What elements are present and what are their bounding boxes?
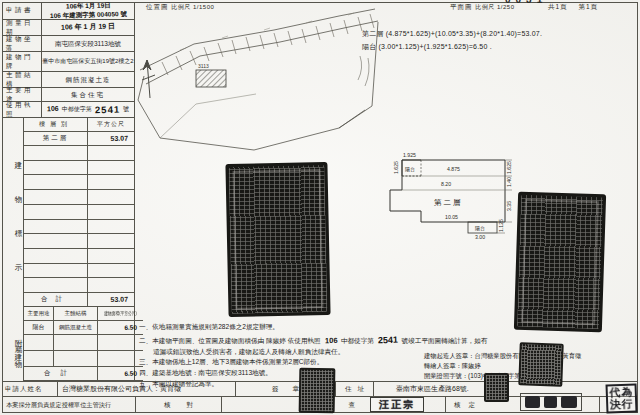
application-doc-number: 106 年建測字第 004050 號 (49, 9, 126, 19)
info-row-address: 建物門牌 臺中市南屯區保安五街19號2樓之2 (2, 52, 134, 72)
examiner-signature-stamp: 汪正宗 (370, 397, 424, 412)
dim-right-balcony: 1.125 (498, 219, 504, 232)
info-row-application: 申請書 106年 1月 19日 106 年建測字第 004050 號 (2, 2, 134, 20)
empty-row (24, 278, 134, 293)
note-line-1: 一、依地籍測量實施規則第282條之2規定辦理。 (139, 322, 487, 333)
applicant-label: 申請人姓名 (2, 382, 58, 396)
delegate-stamp-line2: 決行 (610, 398, 634, 410)
land-lot-label: 建物坐落 (2, 36, 42, 51)
dim-width-bottom: 10.05 (445, 214, 458, 220)
formula-second-floor: 第二層 (4.875*1.625)+(10.05*3.35)+(8.20*1.4… (362, 28, 542, 41)
empty-row (24, 264, 134, 279)
note-line-2a: 二、本建物平面圖、位置圖及建物面積係由 陳婌婷 依使用執照 106 中都使字第 … (139, 333, 487, 347)
dim-balcony-width: 3.00 (475, 234, 485, 240)
door-plate-value: 臺中市南屯區保安五街19號2樓之2 (42, 58, 134, 65)
annex-row-balcony: 陽台 鋼筋混凝土造 6.50 (24, 321, 143, 335)
license-year: 106 (47, 105, 59, 114)
examiner-name: 汪正宗 (379, 398, 415, 412)
formula-balcony: 陽台 (3.00*1.125)+(1.925*1.625)=6.50 . (362, 41, 542, 54)
license-suffix: 號 (123, 106, 129, 113)
use-license-value: 106 中都使字第 2541 號 (42, 104, 134, 115)
dim-top: 1.925 (403, 152, 416, 158)
registration-seal-right (514, 192, 606, 333)
main-use-value: 集合住宅 (42, 91, 134, 99)
building-total-label: 合計 (24, 293, 88, 306)
survey-date-value: 106 年 1 月 19 日 (61, 23, 115, 33)
annex-area-value: 6.50 (98, 320, 143, 334)
dim-right-mid: 1.40 (506, 177, 512, 187)
column-header-floor: 樓層別 (24, 118, 88, 131)
empty-row (24, 335, 143, 351)
applicant-name: 台灣糖業股份有限公司負責人：黃育徵 (58, 382, 236, 396)
floor-row: 第二層 53.07 (24, 132, 134, 146)
location-map: 3113 (134, 6, 380, 158)
pages-total: 共1頁 (548, 3, 568, 10)
annex-total-value: 6.50 (98, 366, 143, 380)
note-2-tail: 號竣工平面圖轉繪計算，如有 (402, 337, 488, 344)
delegate-decision-stamp: 代為 決行 (606, 383, 638, 413)
building-table-header: 樓層別 平方公尺 (24, 118, 134, 132)
dim-right-top: 1.625 (506, 161, 512, 174)
license-prefix: 中都使字第 (62, 106, 92, 113)
balcony-bottom-label: 陽台 (475, 225, 485, 232)
floor-area-value: 53.07 (88, 131, 134, 145)
empty-row (24, 249, 134, 264)
annex-col-structure: 主體結構 (54, 307, 98, 320)
subject-parcel-hatch (196, 70, 226, 87)
subject-lot-number: 3113 (198, 63, 209, 69)
room-label: 第二層 (434, 198, 463, 207)
note-2-mid: 中都使字第 (341, 337, 374, 344)
dim-width-mid: 8.20 (441, 181, 451, 187)
survey-date-label: 測量日期 (2, 20, 42, 35)
floor-name: 第二層 (24, 132, 88, 145)
annex-col-use: 主要用途 (24, 307, 54, 320)
page-indicator: 共1頁 第1頁 (548, 3, 598, 12)
annex-total-label: 合計 (24, 367, 98, 380)
floor-plan: 陽台 陽台 1.925 1.625 4.875 8.20 10.05 3.00 … (385, 148, 515, 240)
note-2-text: 二、本建物平面圖、位置圖及建物面積係由 陳婌婷 依使用執照 (139, 337, 321, 344)
building-total-row: 合計 53.07 (24, 293, 134, 307)
empty-row (24, 161, 134, 176)
empty-row (24, 351, 143, 367)
empty-row (24, 205, 134, 220)
application-label: 申請書 (2, 2, 42, 19)
annex-header: 主要用途 主體結構 建物面積(平方公尺) (24, 307, 143, 321)
parcel-band (140, 9, 378, 84)
info-row-license: 使用執照 106 中都使字第 2541 號 (2, 102, 134, 118)
builder-square-stamp (518, 342, 563, 387)
dim-width-top: 4.875 (447, 166, 460, 172)
use-license-label: 使用執照 (2, 102, 42, 117)
page-number: 第1頁 (578, 3, 598, 10)
registration-seal-center (225, 162, 330, 317)
annex-col-area: 建物面積(平方公尺) (104, 310, 136, 317)
dim-right-low: 3.35 (506, 201, 512, 211)
applicant-square-stamp (299, 368, 336, 414)
note-2-number: 2541 (378, 332, 398, 347)
balcony-top: 陽台 (402, 160, 421, 176)
building-total-value: 53.07 (88, 292, 134, 306)
annex-use-value: 陽台 (24, 321, 54, 334)
collate-label: 核對 (136, 397, 222, 413)
application-date: 106年 1月 19日 (65, 2, 110, 11)
empty-row (24, 146, 134, 161)
land-lot-value: 南屯區保安段3113地號 (42, 40, 134, 48)
structure-value: 鋼筋混凝土造 (42, 76, 134, 84)
annex-side-label: 附屬建物 (2, 307, 24, 381)
application-value: 106年 1月 19日 106 年建測字第 004050 號 (42, 2, 134, 19)
dim-left: 1.625 (393, 161, 399, 174)
transcriber-stamp (484, 373, 509, 402)
balcony-bottom: 陽台 (468, 222, 497, 233)
info-table: 申請書 106年 1月 19日 106 年建測字第 004050 號 測量日期 … (2, 2, 135, 118)
note-2-year: 106 (324, 334, 337, 346)
empty-row (24, 234, 134, 249)
annex-table: 附屬建物 主要用途 主體結構 建物面積(平方公尺) 陽台 鋼筋混凝土造 6.50… (2, 307, 135, 381)
license-number: 2541 (95, 103, 120, 115)
building-table-side-label: 建物標示 (2, 118, 24, 307)
building-area-table: 建物標示 樓層別 平方公尺 第二層 53.07 合計 53.07 (2, 118, 135, 307)
clipped-page-number: 0031 (505, 0, 547, 5)
building-survey-form: 位置圖 比例尺 1/1500 平面圖 比例尺 1/250 共1頁 第1頁 003… (0, 0, 640, 415)
map-boundary (138, 22, 378, 150)
main-use-label: 主要用途 (2, 88, 42, 101)
delegation-policy: 本案採分層負責規定授權單位主管決行 (2, 397, 136, 413)
empty-row (24, 175, 134, 190)
column-header-area: 平方公尺 (88, 118, 134, 131)
door-plate-label: 建物門牌 (2, 52, 42, 71)
empty-row (24, 190, 134, 205)
info-row-land-lot: 建物坐落 南屯區保安段3113地號 (2, 36, 134, 52)
approval-stamp (520, 393, 582, 411)
address-label: 住址 (336, 382, 374, 396)
annex-total-row: 合計 6.50 (24, 367, 143, 381)
empty-row (24, 220, 134, 235)
area-formulas: 第二層 (4.875*1.625)+(10.05*3.35)+(8.20*1.4… (362, 28, 542, 53)
annex-structure-value: 鋼筋混凝土造 (54, 321, 98, 334)
balcony-top-label: 陽台 (405, 166, 415, 173)
plan-title: 平面圖 (450, 3, 473, 10)
